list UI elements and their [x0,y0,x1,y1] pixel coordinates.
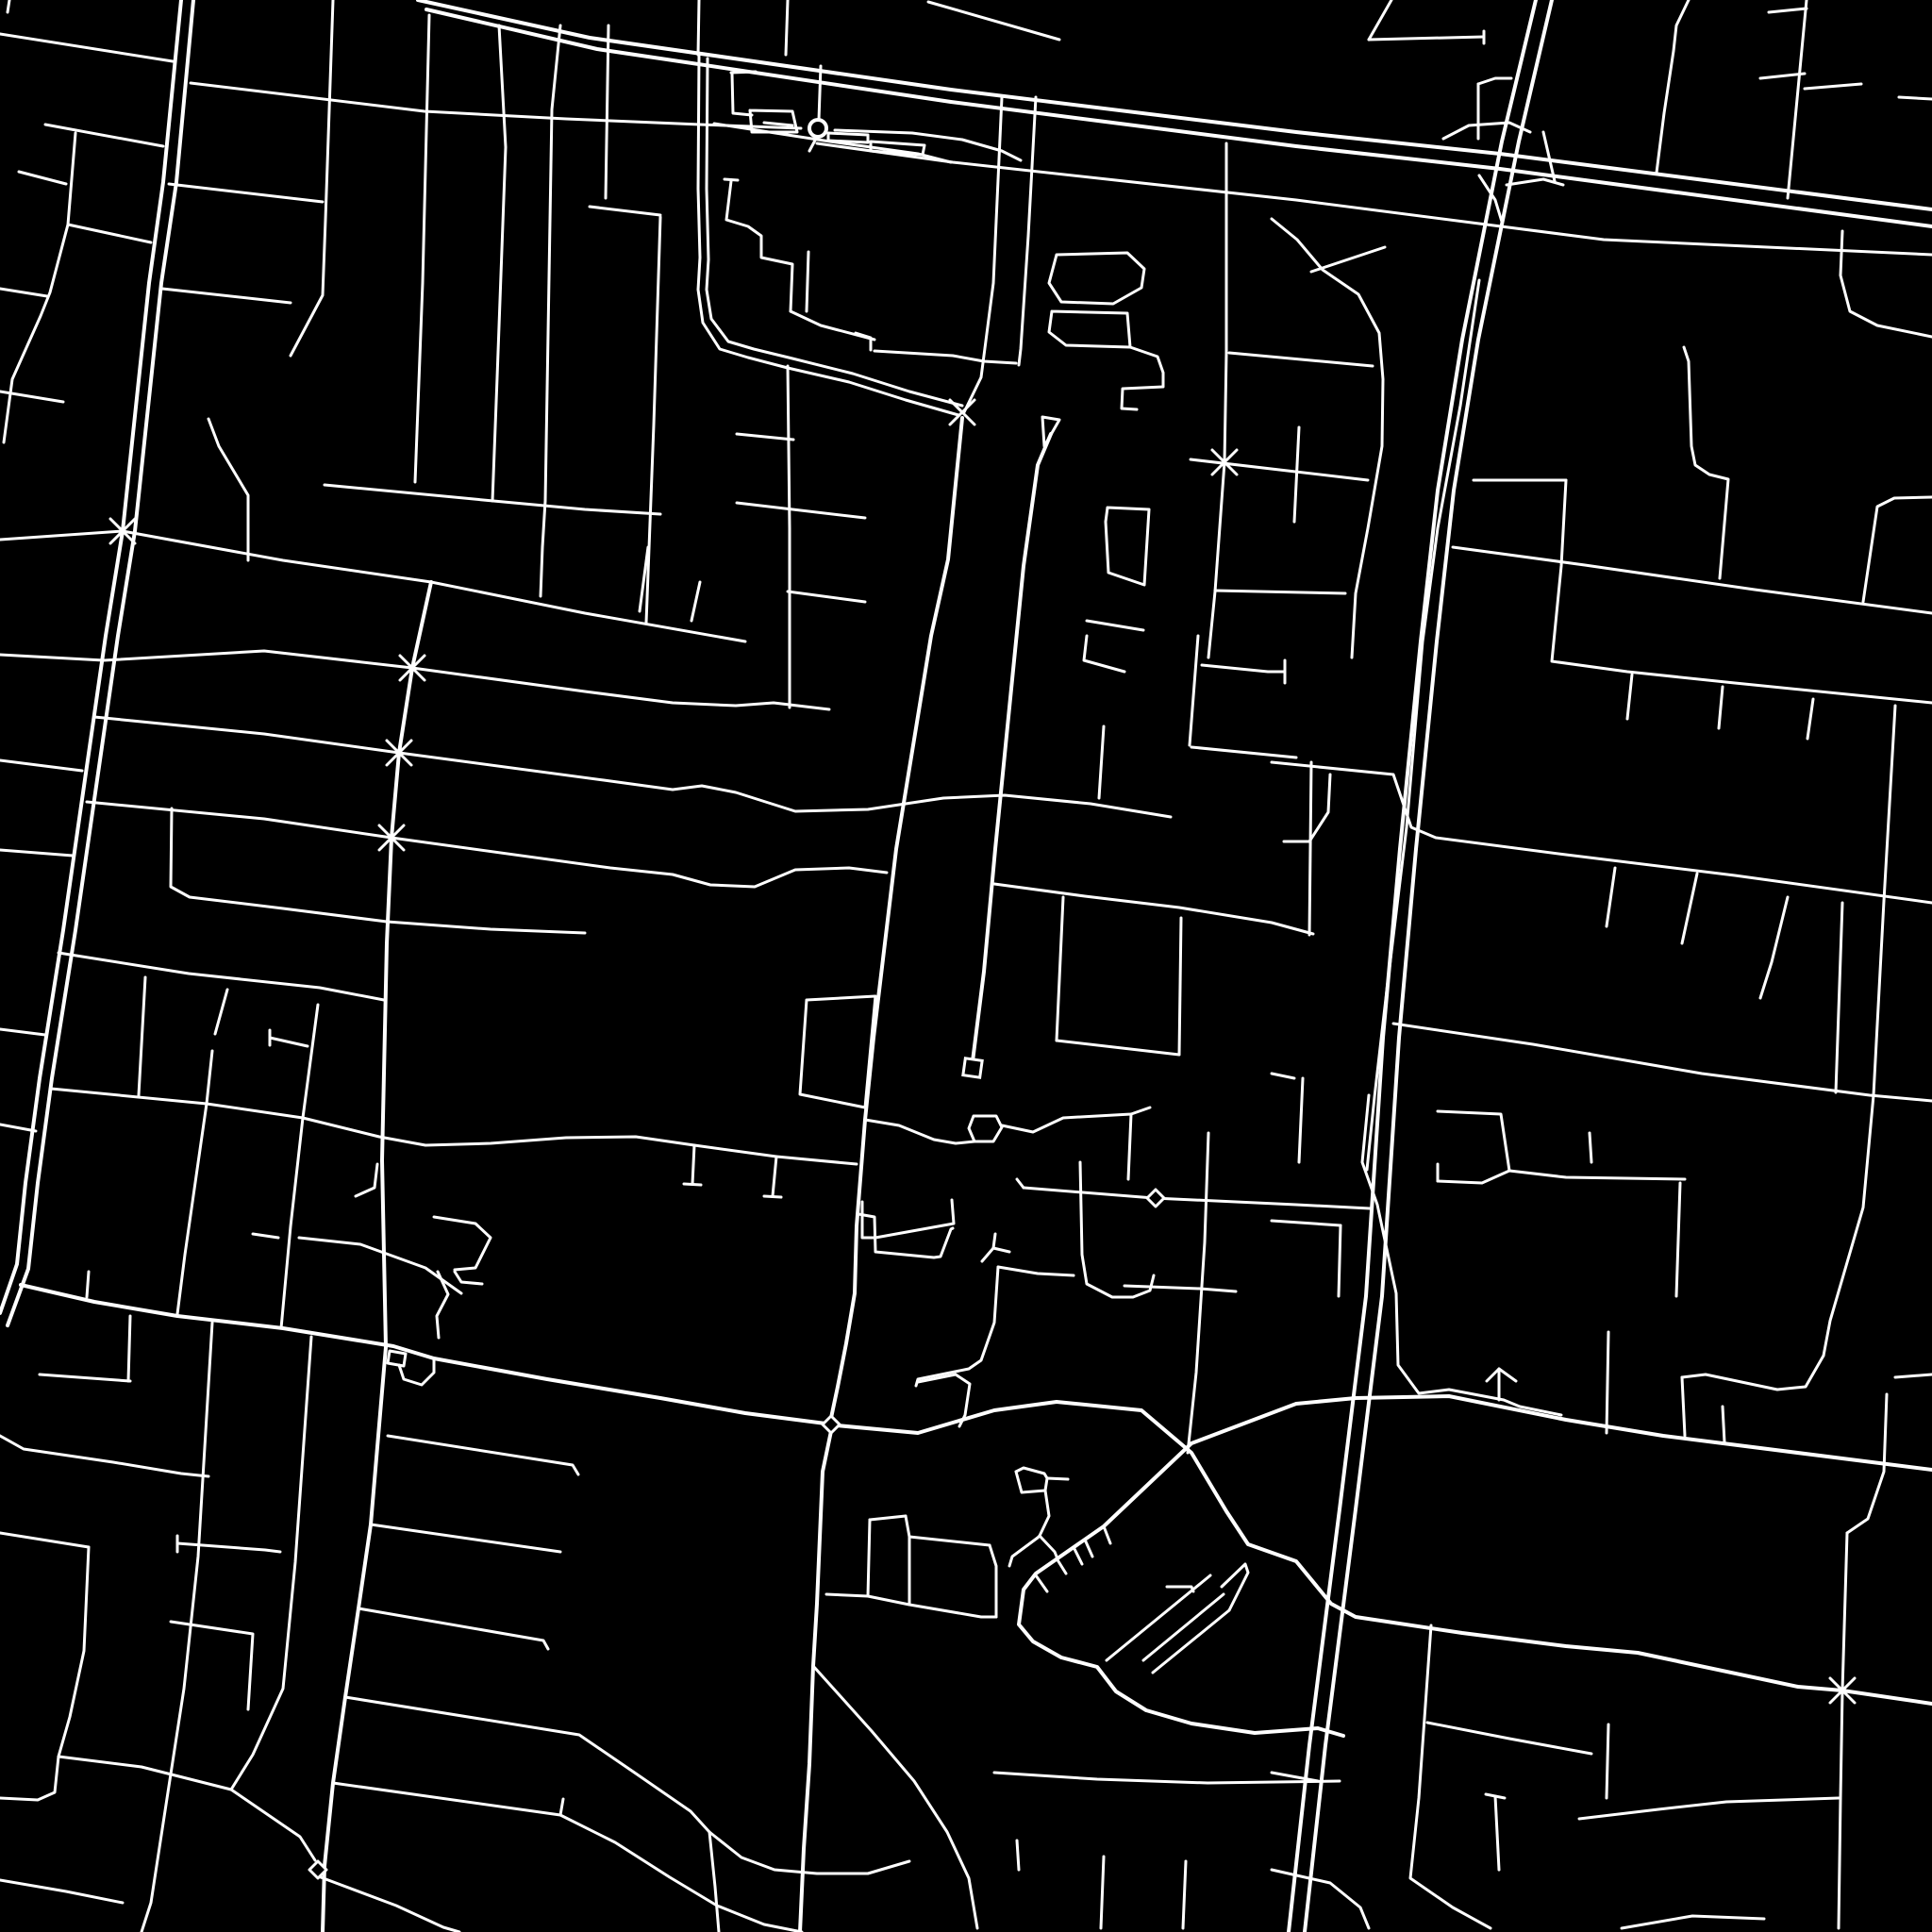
road-curve-5-8 [916,1267,998,1386]
road-village-inner-2 [807,252,808,311]
road-vertical-700 [646,217,660,623]
road-t3-h1 [1769,8,1807,12]
road-t3-corner-b [1369,37,1484,40]
road-vertical-a-long [973,434,1051,1061]
road-ladder-v3 [207,1051,212,1104]
road-ladder-b-tooth-2 [1682,874,1697,943]
road-highway-branch [817,143,1932,255]
road-vertical-village-2 [1019,97,1036,365]
road-h-374 [1229,353,1373,366]
road-road-g [21,1285,825,1424]
road-g-diag-1 [231,1790,315,1860]
road-t9-h-corner [1895,1374,1932,1377]
road-left-stub-b [0,850,73,856]
road-highway-north-1 [418,0,1932,209]
road-t6-lh-a [1272,1074,1294,1078]
road-triangle-top [1042,417,1059,446]
road-v-1145 [1080,1162,1154,1297]
road-pentagon-connector [865,1120,974,1143]
diamond-junction-icon [823,1416,840,1433]
road-diag-above-highway [928,2,1059,40]
road-pentagon-loop [969,1116,1002,1141]
road-mid-street [994,884,1313,934]
square-deadend-icon [963,1058,982,1077]
road-east-v1 [1874,706,1895,1095]
road-ladder-b-tooth-1 [1607,868,1615,926]
road-village-inner-5 [874,351,1016,363]
road-vertical-b [831,418,962,1418]
road-rung6-stub-2t [764,1196,781,1197]
crossroad-flare-icon [1224,450,1237,462]
road-t3-v1 [1657,0,1689,173]
road-block8-h [909,1605,996,1617]
road-t7-hook [0,1757,58,1800]
road-block8-a [870,1516,906,1520]
road-east-corner-street [1863,497,1932,602]
road-t1-stub-top [8,0,9,12]
road-curve-sw [813,1666,977,1928]
road-rung6-stub-1t [684,1184,701,1185]
road-t1-vertical-a [291,0,333,356]
road-t7-h3 [0,1533,89,1547]
road-block8-b [868,1520,870,1596]
road-t7-h1-v [128,1316,130,1381]
road-block-e [800,996,875,1108]
road-comb-tooth-2 [1085,1540,1092,1557]
road-block-d-b [1057,1041,1179,1055]
road-v-1381 [1299,1078,1303,1162]
road-comb-tooth-4 [1057,1558,1066,1574]
road-village-boundary-1 [698,55,958,415]
road-block8-g [990,1545,996,1617]
road-t1-hook [208,419,248,560]
road-block8-c [826,1594,868,1596]
road-t3-hook-h [1478,78,1511,84]
road-t8-v2 [1183,1861,1186,1928]
road-t9-b2 [1579,1798,1839,1819]
road-v-1781 [1676,1183,1680,1296]
road-left-stub-c [0,1029,45,1035]
road-t1-vertical-b [415,15,429,482]
road-h-792 [1191,747,1296,758]
road-t3-v2 [1788,0,1807,198]
road-t9-y-b [1499,1369,1516,1381]
road-t1-h5 [0,289,47,296]
road-t1-vertical-c2 [541,25,560,596]
road-ee-connector [1122,347,1163,409]
road-h-street-2 [371,1524,560,1552]
road-v-1377 [1294,427,1299,522]
road-rung-2 [94,717,1171,817]
road-flower-3 [299,1238,461,1293]
road-t1-h3 [68,225,151,242]
road-t8-stub [1017,1840,1019,1870]
road-t9-b1 [1427,1723,1591,1754]
road-t6-j-hook [1284,774,1330,841]
road-t9-tick [1723,1407,1724,1442]
road-east-v3-stub [1682,1377,1685,1436]
road-stadium-tip [1222,1564,1248,1610]
road-t7-v2 [177,1104,207,1314]
road-t9-b1-v [1607,1724,1608,1798]
road-y-tick-1 [982,1248,993,1261]
road-pentagon-east [1002,1108,1150,1132]
road-v-1281-lower [1188,1133,1208,1453]
road-divided-road-east-1 [1289,0,1536,1932]
road-t1-h2 [19,172,66,184]
road-ladder-b-east [1272,762,1932,903]
road-v-1390 [1309,762,1311,935]
road-village-west-road [191,83,801,128]
road-east-v3 [1824,1095,1874,1356]
crossroad-flare-icon [110,519,123,531]
road-ladder-a-tooth-3 [1807,699,1813,739]
road-east-v3-curve [1682,1356,1824,1390]
road-ladder-a-tooth-1 [1627,675,1632,719]
crossroad-flare-icon [1212,450,1224,462]
map-canvas[interactable] [0,0,1932,1932]
road-flag-loop [1016,1468,1047,1492]
road-v-1421 [1339,1225,1341,1296]
road-g-square-loop [388,1351,406,1366]
road-five-shape [1840,231,1932,337]
road-flag-tick [1047,1478,1068,1479]
road-rung-3 [87,802,887,887]
road-rung-5 [58,953,384,1000]
road-y-tick-3 [993,1234,995,1248]
road-h-street-5-tick [560,1799,563,1815]
road-t9-stub-1t [1486,1794,1505,1798]
road-t7-h2 [0,1436,208,1476]
road-ladder-h1 [270,1038,308,1046]
road-block-d-a [1057,897,1063,1041]
road-hook-street-east [1684,347,1728,578]
road-rung-4 [171,808,585,933]
crossroad-flare-icon [1842,1678,1855,1690]
road-village-rect-east-1 [828,133,868,142]
road-village-block-nw-b [732,74,752,115]
road-ee-block-b [1049,311,1130,347]
road-village-north-spoke [819,66,821,120]
road-flag-arm-2 [1040,1536,1057,1557]
road-village-block-nw-a [731,72,756,73]
road-east-v2 [1836,903,1842,1092]
road-t7-v3 [281,1118,303,1328]
road-t7-h8 [0,1880,123,1903]
road-t1-h-d [590,207,660,215]
road-block8-f [909,1537,990,1545]
road-left-stub-d [0,1124,36,1131]
road-ladder-v2 [215,990,227,1034]
road-ladder-v1 [139,977,145,1095]
roundabout-icon [809,120,826,137]
road-stadium-line-2 [1143,1594,1224,1660]
road-t3-h3 [1805,84,1861,89]
road-h-626 [1215,591,1345,593]
road-h-1363 [1124,1286,1236,1291]
road-t3-corner-a [1369,0,1391,40]
crossroad-flare-icon [1830,1690,1842,1703]
road-t1-vertical-c1 [492,25,506,501]
road-t9-stub-1 [1495,1796,1499,1870]
road-ladder-b-tooth-3 [1760,897,1788,998]
road-t9-y-a [1487,1369,1499,1400]
road-vertical-left-2 [231,1337,311,1790]
road-village-boundary-top [698,0,699,55]
road-t6-lh-b [1272,1221,1341,1225]
road-comb-tooth-1 [1104,1526,1110,1543]
road-v-1270 [1190,636,1198,745]
road-mid-block-1 [858,1214,953,1257]
road-left-stub-a [0,760,82,771]
road-t1-h-306 [162,289,291,303]
road-ramp-nw [1443,123,1530,139]
road-h-street-1 [388,1436,578,1474]
road-vertical-center-left [323,582,431,1932]
road-rung6-stub-2 [773,1157,776,1196]
road-ladder-v4 [303,1005,318,1118]
road-t3-h4 [1899,97,1932,99]
road-block-c [1106,508,1149,585]
road-rung-6 [51,1089,857,1164]
road-ee-block-a [1049,253,1144,304]
road-t8-v1 [1101,1857,1104,1928]
road-t9-bottom-1 [1622,1916,1764,1928]
road-t5-a [1084,636,1124,672]
road-t9-left-1 [1410,1625,1491,1928]
road-g-diag-2 [321,1877,459,1932]
road-t6-wiggle [1438,1171,1685,1183]
road-s-1339 [998,1267,1074,1275]
road-ladder-a-tooth-2 [1719,687,1723,728]
road-t9-v-1950 [1839,1533,1847,1928]
road-long-street-1270 [1024,1188,1370,1208]
road-t9-bottom-2 [1272,1870,1369,1928]
road-pentagon-east-branch [1128,1114,1131,1179]
road-t2-stub-1 [737,434,793,440]
road-block-d-c [1179,918,1181,1055]
road-t1-h-195 [169,184,323,202]
road-t2-stub-2 [737,503,865,518]
road-t7-v1 [87,1272,89,1297]
road-t1-h1 [45,125,163,146]
road-bottom-net-2 [709,1832,719,1932]
road-t6-wiggle-head [1438,1111,1509,1171]
road-h-658 [1087,621,1143,630]
road-y-tick-2 [993,1248,1009,1252]
road-comb-tooth-5 [1036,1575,1047,1591]
road-flag-arm-1 [1009,1538,1038,1566]
road-block8-d [868,1596,909,1605]
road-t7-h3-v [58,1547,89,1757]
road-village-inner-1 [726,181,792,311]
road-village-rect-west-inner [764,123,792,125]
road-comb-tooth-3 [1074,1547,1082,1564]
road-t7-h5 [177,1543,280,1552]
road-vertical-835 [788,366,790,708]
road-v-1170 [1099,726,1104,798]
road-ladder-c-east [1393,1024,1932,1101]
road-t7-h7 [58,1757,231,1790]
road-long-street-tick [1017,1179,1024,1188]
road-flag-s-curve [1038,1491,1049,1538]
road-rung6-stub-1 [692,1145,694,1184]
road-t2-stub-3 [788,591,865,602]
road-stub-835-top [786,0,788,55]
road-flower-1 [253,1234,278,1238]
road-flower-6 [455,1272,482,1284]
road-vertical-1290 [1208,143,1226,658]
road-network-svg [0,0,1932,1932]
road-t9-v-1703 [1607,1332,1608,1433]
road-bottom-net-1 [709,1832,909,1874]
road-flower-2 [356,1164,377,1196]
road-stub-742 [691,582,700,621]
road-flower-4 [434,1217,491,1270]
road-block8-e [906,1516,909,1605]
road-t5-b [1202,665,1285,672]
road-t6-wiggle-stub [1590,1133,1591,1162]
road-hook-8 [918,1374,970,1426]
road-t3-diag [1311,247,1385,272]
road-t1-left-vertical [4,133,75,442]
road-divided-road-east-2 [1305,0,1552,1932]
diamond-junction-icon [1147,1190,1164,1207]
road-h-street-3 [358,1608,548,1649]
road-t7-h1 [40,1374,130,1381]
road-t9-h2 [1272,1773,1318,1781]
road-t1-diag-corner [0,34,173,61]
road-long-diag-east [1453,547,1932,613]
